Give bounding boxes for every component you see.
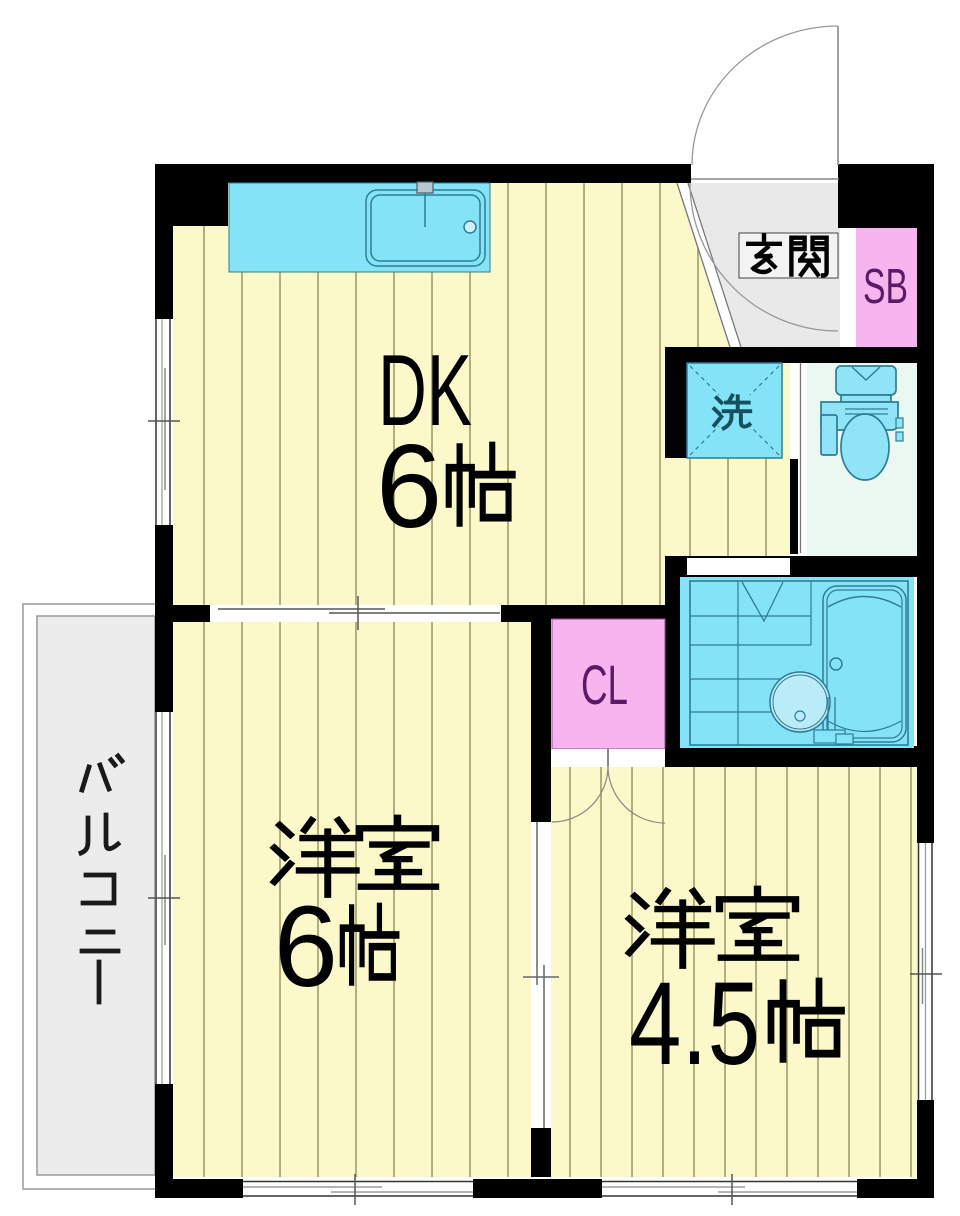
svg-text:4.5: 4.5 [629,958,760,1090]
svg-text:CL: CL [581,653,628,716]
svg-text:6: 6 [376,420,442,553]
svg-text:6: 6 [274,883,338,1011]
svg-text:SB: SB [863,260,908,314]
